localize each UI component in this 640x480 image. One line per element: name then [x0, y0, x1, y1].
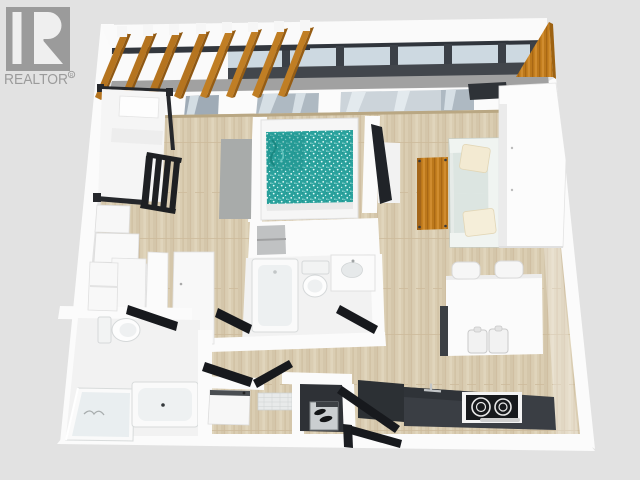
svg-text:R: R: [70, 73, 74, 79]
svg-text:REALTOR: REALTOR: [4, 71, 68, 88]
